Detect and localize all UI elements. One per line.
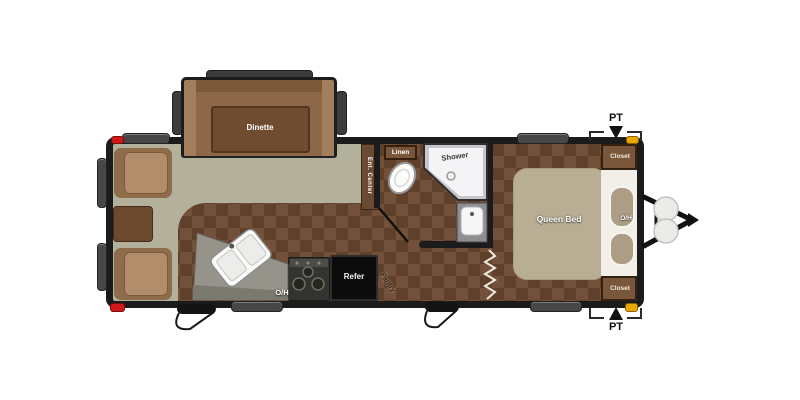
window-rear-lower [97, 243, 107, 291]
propane-tank [654, 219, 678, 243]
window-bedroom-bottom [530, 301, 582, 312]
bathroom-vanity [457, 203, 487, 242]
propane-tank [654, 197, 678, 221]
ent-center-label: Ent. Center [361, 146, 376, 206]
stove-burners [290, 259, 328, 290]
entry-door-swing-bedroom [425, 310, 457, 327]
hitch-coupler [688, 213, 699, 227]
clearance-light-amber-bottom [625, 303, 638, 312]
linen-label: Linen [384, 147, 417, 159]
clearance-light-red-bottom [110, 303, 125, 312]
bedroom-curtain [485, 250, 495, 299]
window-kitchen-bottom [231, 301, 283, 312]
window-top-rear [122, 133, 170, 144]
queen-bed-label: Queen Bed [522, 213, 596, 225]
closet-bottom-label: Closet [601, 283, 639, 295]
window-bedroom-top [517, 133, 569, 144]
closet-top-label: Closet [601, 151, 639, 163]
arrow-up-icon [609, 307, 623, 320]
toilet [384, 158, 421, 198]
entry-door-main [177, 304, 216, 314]
arrow-down-icon [609, 126, 623, 139]
hitch-a-frame [644, 197, 699, 246]
window-rear-upper [97, 158, 107, 208]
pt-top-label: PT [602, 112, 630, 124]
clearance-light-red-top [111, 136, 124, 144]
pt-bottom-label: PT [602, 321, 630, 333]
bathroom-door [379, 208, 408, 242]
entry-door-bedroom [425, 302, 459, 312]
entry-door-swing-main [176, 312, 214, 329]
dinette-label: Dinette [213, 122, 307, 134]
bed-overhead-label: O/H [614, 213, 638, 225]
clearance-light-amber-top [626, 136, 639, 144]
refer-label: Refer [330, 271, 378, 283]
floorplan-canvas: Dinette Ent. Center Linen Shower O/H Ref… [0, 0, 800, 400]
fixtures-overlay [0, 0, 800, 400]
kitchen-overhead-label: O/H [266, 287, 298, 299]
